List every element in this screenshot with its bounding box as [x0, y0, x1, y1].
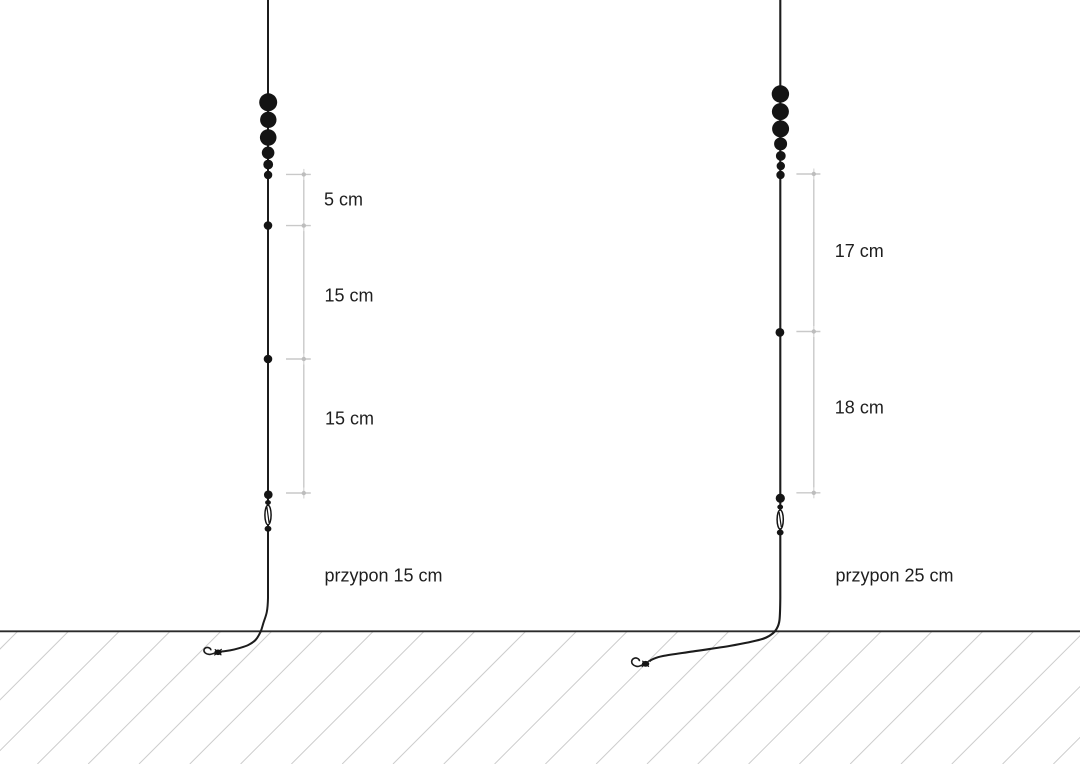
svg-text:15 cm: 15 cm [325, 409, 374, 429]
svg-text:17 cm: 17 cm [835, 241, 884, 261]
svg-text:15 cm: 15 cm [325, 286, 374, 306]
svg-text:5 cm: 5 cm [324, 190, 363, 210]
svg-text:18 cm: 18 cm [835, 398, 884, 418]
svg-text:przypon 25 cm: przypon 25 cm [836, 566, 954, 586]
svg-text:przypon 15 cm: przypon 15 cm [325, 566, 443, 586]
